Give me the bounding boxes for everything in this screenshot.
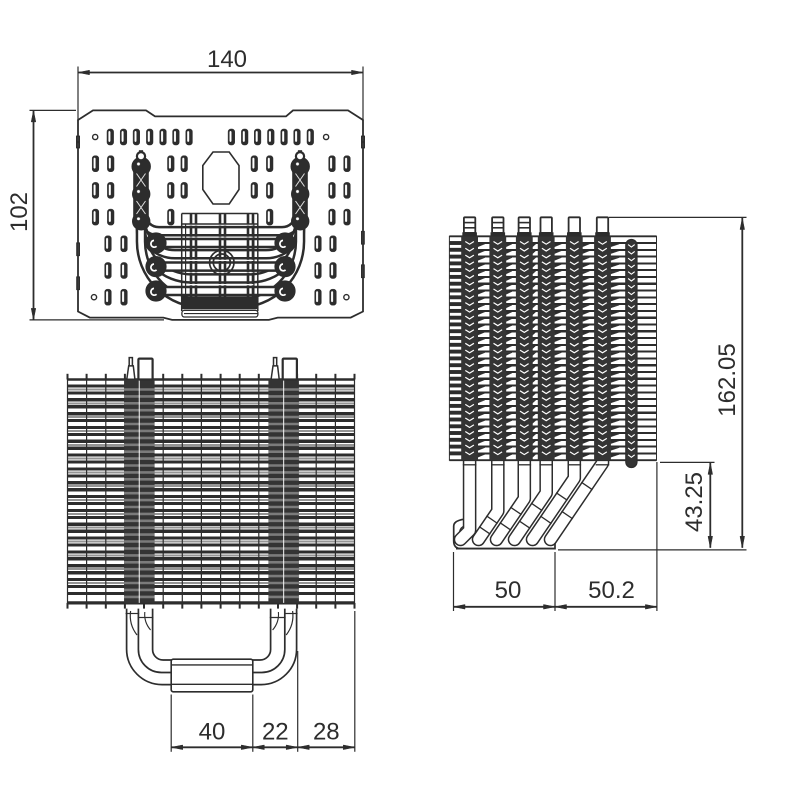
svg-text:50.2: 50.2 xyxy=(588,577,635,604)
svg-text:40: 40 xyxy=(199,719,226,746)
svg-text:140: 140 xyxy=(207,46,247,73)
svg-text:50: 50 xyxy=(495,577,522,604)
svg-text:22: 22 xyxy=(262,719,289,746)
svg-text:43.25: 43.25 xyxy=(681,472,708,532)
svg-text:28: 28 xyxy=(313,719,340,746)
svg-text:162.05: 162.05 xyxy=(714,343,741,416)
svg-text:102: 102 xyxy=(6,192,33,232)
